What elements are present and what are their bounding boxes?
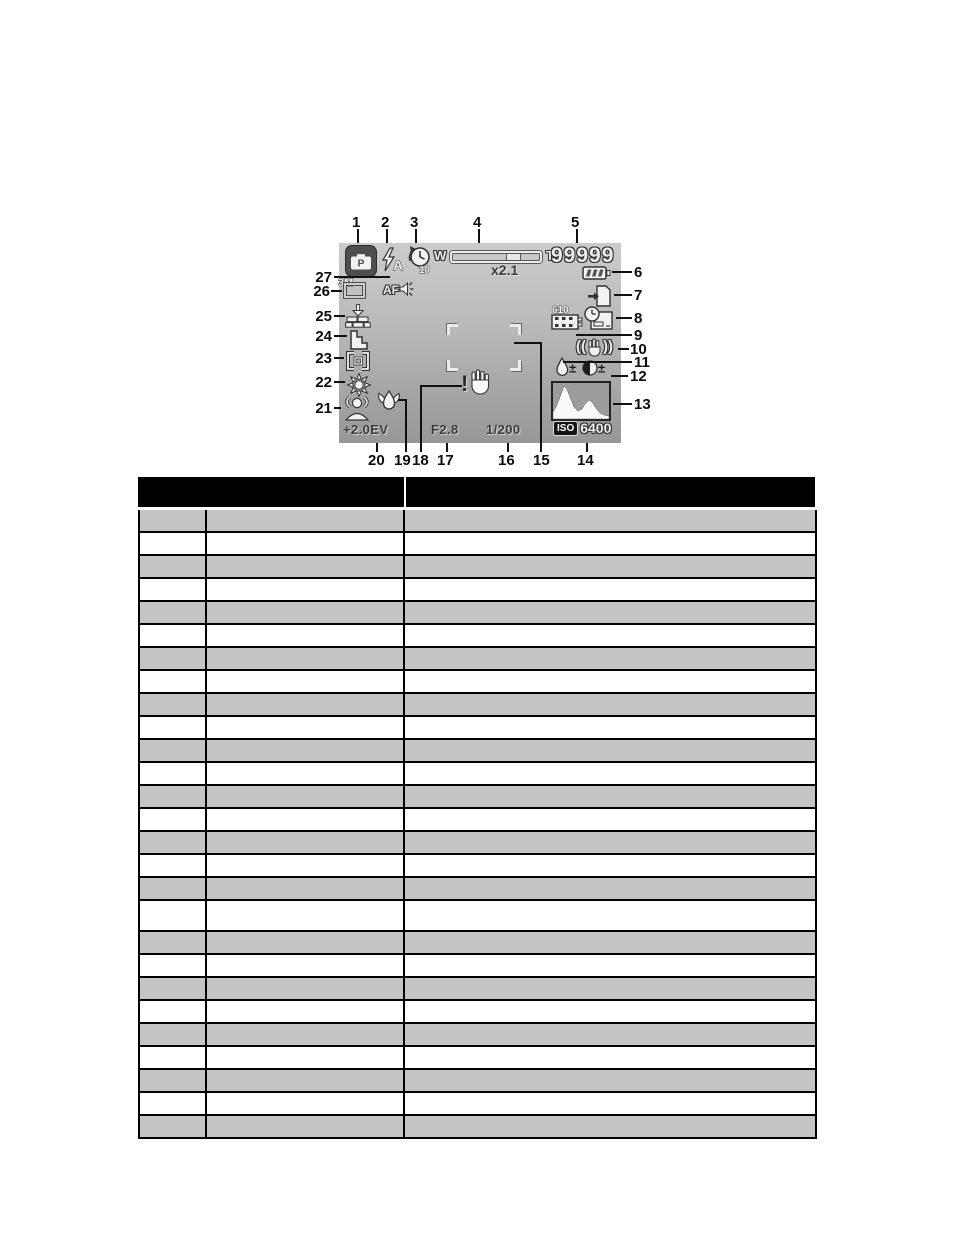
focus-frame-corner [447, 360, 458, 371]
table-cell [206, 510, 404, 532]
table-row [139, 900, 816, 931]
callout-line [616, 317, 632, 319]
callout-line [507, 443, 509, 452]
callout-17: 17 [437, 452, 454, 469]
callout-line [514, 342, 542, 344]
table-row [139, 716, 816, 739]
callout-line [334, 335, 347, 337]
table-cell [404, 931, 816, 954]
table-cell [206, 555, 404, 578]
table-row [139, 762, 816, 785]
callout-15: 15 [533, 452, 550, 469]
table-row [139, 1023, 816, 1046]
table-cell [139, 510, 206, 532]
shake-warning-icon: ! [461, 369, 494, 397]
table-cell [206, 1069, 404, 1092]
callout-line [334, 276, 390, 278]
svg-text:P: P [357, 258, 364, 270]
callout-23: 23 [306, 350, 332, 367]
callout-line [376, 443, 378, 452]
table-cell [404, 1023, 816, 1046]
table-cell [404, 1092, 816, 1115]
table-cell [206, 931, 404, 954]
table-row [139, 510, 816, 532]
table-row [139, 1115, 816, 1138]
camera-lcd-preview: P A 10 W T x2.1 [339, 243, 621, 443]
callout-18: 18 [412, 452, 429, 469]
table-cell [206, 624, 404, 647]
table-cell [206, 877, 404, 900]
table-cell [206, 831, 404, 854]
quality-icon [345, 304, 371, 333]
table-row [139, 739, 816, 762]
callout-line [334, 315, 345, 317]
table-cell [139, 785, 206, 808]
callout-8: 8 [634, 310, 642, 327]
svg-text:A: A [393, 257, 403, 273]
table-cell [139, 900, 206, 931]
aperture-value: F2.8 [431, 422, 459, 437]
table-cell [206, 900, 404, 931]
table-row [139, 624, 816, 647]
table-cell [206, 1092, 404, 1115]
table-cell [206, 716, 404, 739]
table-cell [206, 977, 404, 1000]
record-mode-icon: P [346, 246, 376, 276]
callout-line [576, 334, 632, 336]
table-row [139, 647, 816, 670]
table-cell [139, 1023, 206, 1046]
table-row [139, 877, 816, 900]
self-timer-icon: 10 [406, 244, 433, 279]
stabilizer-icon: (()) [576, 338, 613, 359]
table-cell [139, 716, 206, 739]
table-cell [206, 647, 404, 670]
callout-line [420, 385, 422, 452]
table-cell [404, 601, 816, 624]
table-row [139, 954, 816, 977]
callout-line [614, 294, 632, 296]
table-cell [206, 762, 404, 785]
table-row [139, 1092, 816, 1115]
movie-remaining-icon: 610 [550, 303, 584, 336]
table-row [139, 555, 816, 578]
table-cell [139, 555, 206, 578]
table-cell [206, 1000, 404, 1023]
table-cell [206, 693, 404, 716]
callout-line [405, 399, 407, 452]
table-cell [139, 877, 206, 900]
table-row [139, 977, 816, 1000]
table-cell [404, 785, 816, 808]
callout-21: 21 [306, 400, 332, 417]
table-cell [139, 693, 206, 716]
focus-frame-corner [510, 324, 521, 335]
callout-line [446, 443, 448, 452]
table-cell [206, 785, 404, 808]
table-cell [139, 601, 206, 624]
table-cell [404, 1046, 816, 1069]
callout-13: 13 [634, 396, 651, 413]
table-cell [404, 954, 816, 977]
table-cell [139, 762, 206, 785]
callout-24: 24 [306, 328, 332, 345]
table-cell [139, 954, 206, 977]
callout-16: 16 [498, 452, 515, 469]
callout-line [357, 229, 359, 243]
callout-line [586, 443, 588, 452]
shutter-speed: 1/200 [486, 422, 521, 437]
battery-full-icon [582, 265, 612, 286]
svg-text:10: 10 [419, 265, 431, 274]
table-cell [139, 977, 206, 1000]
table-cell [404, 532, 816, 555]
header-divider [404, 477, 406, 507]
callout-line [576, 229, 578, 243]
table-cell [139, 1092, 206, 1115]
table-cell [139, 1069, 206, 1092]
table-cell [206, 808, 404, 831]
table-cell [206, 578, 404, 601]
callout-line [478, 229, 480, 243]
table-cell [206, 1023, 404, 1046]
table-row [139, 693, 816, 716]
table-row [139, 931, 816, 954]
table-cell [139, 624, 206, 647]
table-cell [404, 1069, 816, 1092]
af-lamp-icon: AF [383, 280, 414, 299]
table-cell [404, 624, 816, 647]
table-cell [139, 1046, 206, 1069]
callout-12: 12 [630, 368, 647, 385]
legend-table-body [139, 510, 816, 1138]
table-cell [139, 578, 206, 601]
table-cell [404, 762, 816, 785]
table-row [139, 578, 816, 601]
table-cell [404, 693, 816, 716]
callout-19: 19 [394, 452, 411, 469]
table-cell [206, 954, 404, 977]
table-row [139, 1046, 816, 1069]
callout-7: 7 [634, 287, 642, 304]
table-cell [139, 831, 206, 854]
callout-line [612, 271, 632, 273]
iso-badge: ISO [554, 422, 577, 435]
table-cell [404, 555, 816, 578]
table-row [139, 1069, 816, 1092]
callout-20: 20 [368, 452, 385, 469]
manual-page: P A 10 W T x2.1 [0, 0, 954, 1235]
table-cell [404, 977, 816, 1000]
table-cell [404, 808, 816, 831]
iso-value: ISO6400 [554, 420, 611, 438]
callout-6: 6 [634, 264, 642, 281]
callout-line [611, 375, 628, 377]
table-row [139, 532, 816, 555]
callout-26: 26 [304, 283, 330, 300]
table-row [139, 808, 816, 831]
table-cell [139, 1115, 206, 1138]
callout-line [331, 290, 342, 292]
table-cell [206, 532, 404, 555]
table-row [139, 670, 816, 693]
table-cell [206, 1115, 404, 1138]
callout-line [334, 407, 341, 409]
table-cell [404, 716, 816, 739]
callout-line [563, 361, 632, 363]
callout-line [420, 385, 462, 387]
table-cell [404, 578, 816, 601]
table-row [139, 601, 816, 624]
focus-frame-corner [510, 360, 521, 371]
white-balance-icon [347, 373, 371, 402]
table-cell [139, 931, 206, 954]
table-cell [206, 601, 404, 624]
table-cell [404, 900, 816, 931]
table-row [139, 831, 816, 854]
table-cell [404, 877, 816, 900]
table-cell [206, 1046, 404, 1069]
table-cell [206, 670, 404, 693]
callout-line [540, 342, 542, 452]
callout-line [334, 381, 345, 383]
legend-table-header [138, 477, 815, 507]
table-cell [139, 670, 206, 693]
table-cell [404, 1115, 816, 1138]
table-cell [139, 1000, 206, 1023]
table-cell [404, 510, 816, 532]
table-cell [139, 739, 206, 762]
callout-line [334, 357, 344, 359]
macro-icon [376, 389, 402, 420]
zoom-factor: x2.1 [491, 262, 518, 278]
table-cell [404, 831, 816, 854]
flash-auto-icon: A [380, 247, 404, 279]
callout-25: 25 [306, 308, 332, 325]
focus-frame-corner [447, 324, 458, 335]
table-cell [404, 647, 816, 670]
table-cell [206, 854, 404, 877]
callout-line [613, 403, 632, 405]
table-cell [139, 854, 206, 877]
table-cell [206, 739, 404, 762]
date-stamp-icon [582, 305, 615, 337]
callout-line [415, 229, 417, 243]
table-row [139, 854, 816, 877]
table-cell [404, 1000, 816, 1023]
callout-14: 14 [577, 452, 594, 469]
table-cell [404, 854, 816, 877]
callout-22: 22 [306, 374, 332, 391]
table-cell [404, 739, 816, 762]
zoom-wide-label: W [434, 248, 446, 263]
callout-line [386, 229, 388, 243]
table-row [139, 785, 816, 808]
callout-line [618, 348, 629, 350]
table-cell [404, 670, 816, 693]
legend-table [138, 477, 815, 1139]
table-cell [139, 647, 206, 670]
table-row [139, 1000, 816, 1023]
zoom-bar-marker [507, 254, 520, 260]
table-cell [139, 532, 206, 555]
table-cell [139, 808, 206, 831]
